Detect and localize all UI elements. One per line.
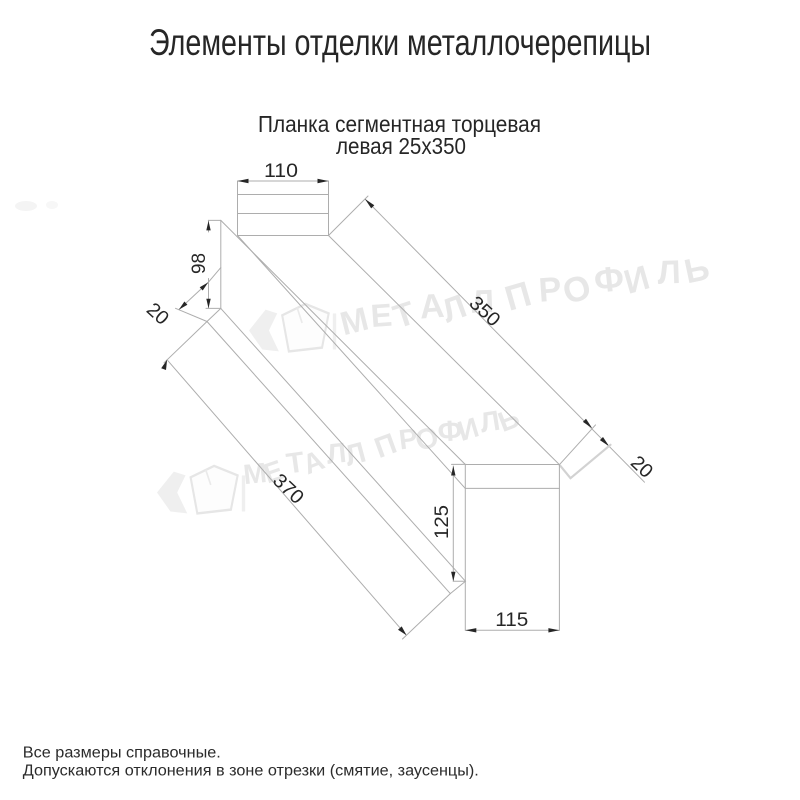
svg-text:левая 25х350: левая 25х350 <box>336 133 466 159</box>
svg-text:Все размеры справочные.: Все размеры справочные. <box>23 745 221 762</box>
svg-text:Л: Л <box>657 253 681 291</box>
svg-text:98: 98 <box>188 253 210 274</box>
svg-text:125: 125 <box>431 505 453 539</box>
svg-text:110: 110 <box>264 160 298 182</box>
svg-text:Элементы отделки металлочерепи: Элементы отделки металлочерепицы <box>149 22 651 63</box>
svg-text:115: 115 <box>495 609 528 631</box>
svg-text:Допускаются отклонения в зоне: Допускаются отклонения в зоне отрезки (с… <box>23 763 479 780</box>
